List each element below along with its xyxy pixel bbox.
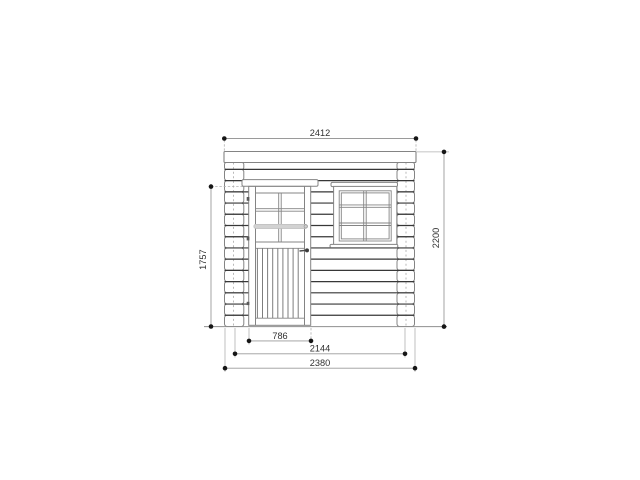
svg-text:2380: 2380 xyxy=(310,358,330,368)
svg-text:2412: 2412 xyxy=(310,128,330,138)
svg-text:2200: 2200 xyxy=(431,228,441,248)
svg-text:2144: 2144 xyxy=(310,344,330,354)
svg-text:1757: 1757 xyxy=(198,249,208,269)
svg-text:786: 786 xyxy=(272,331,287,341)
